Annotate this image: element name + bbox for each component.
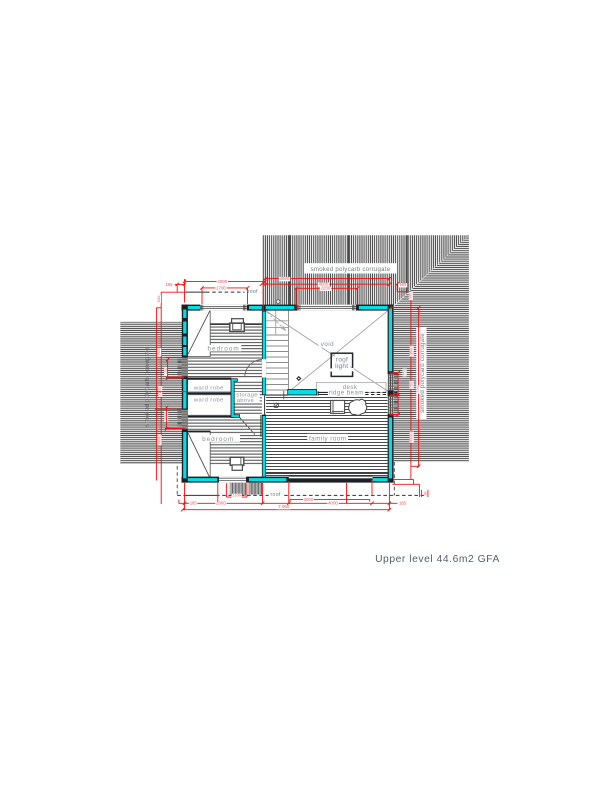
svg-text:750: 750 — [408, 381, 413, 388]
svg-text:750: 750 — [401, 368, 406, 375]
svg-text:600: 600 — [408, 292, 413, 299]
svg-text:2000: 2000 — [216, 501, 226, 506]
svg-text:165: 165 — [166, 282, 174, 287]
svg-text:void: void — [321, 341, 334, 348]
svg-text:roof: roof — [271, 492, 281, 498]
svg-text:1550: 1550 — [163, 411, 168, 421]
svg-text:smoked polycarb corrugate: smoked polycarb corrugate — [311, 266, 391, 273]
svg-text:4600: 4600 — [156, 435, 161, 445]
svg-text:720: 720 — [415, 385, 420, 392]
svg-text:600: 600 — [156, 295, 161, 302]
svg-text:165: 165 — [399, 501, 407, 506]
svg-text:light: light — [335, 363, 348, 370]
svg-text:7 000: 7 000 — [278, 504, 290, 509]
svg-text:2200: 2200 — [321, 286, 331, 291]
svg-text:Upper level 44.6m2 GFA: Upper level 44.6m2 GFA — [375, 554, 500, 565]
svg-text:roof: roof — [248, 289, 258, 295]
svg-text:bedroom: bedroom — [202, 436, 234, 443]
svg-text:ward robe: ward robe — [193, 398, 224, 404]
svg-text:90: 90 — [423, 492, 427, 496]
svg-text:950: 950 — [156, 348, 161, 355]
svg-text:family room: family room — [309, 435, 347, 442]
svg-text:1700: 1700 — [216, 285, 226, 290]
svg-text:1100: 1100 — [232, 492, 241, 497]
svg-text:smoked polycarb corrugate: smoked polycarb corrugate — [419, 333, 426, 413]
svg-text:3000: 3000 — [217, 279, 227, 284]
svg-text:750: 750 — [163, 367, 168, 374]
svg-text:4000: 4000 — [328, 501, 338, 506]
svg-text:ridge beam: ridge beam — [329, 389, 364, 396]
svg-text:smoked polycarb corrugate: smoked polycarb corrugate — [144, 347, 151, 427]
svg-text:3000: 3000 — [304, 497, 314, 502]
svg-text:165: 165 — [190, 501, 198, 506]
svg-text:4000: 4000 — [280, 276, 290, 281]
svg-text:2700: 2700 — [157, 386, 162, 396]
svg-text:bedroom: bedroom — [207, 345, 239, 352]
svg-text:4600: 4600 — [409, 432, 414, 442]
svg-text:above: above — [237, 398, 254, 404]
svg-text:ward robe: ward robe — [193, 385, 224, 391]
svg-text:165: 165 — [400, 282, 408, 287]
svg-text:3800: 3800 — [409, 346, 414, 356]
